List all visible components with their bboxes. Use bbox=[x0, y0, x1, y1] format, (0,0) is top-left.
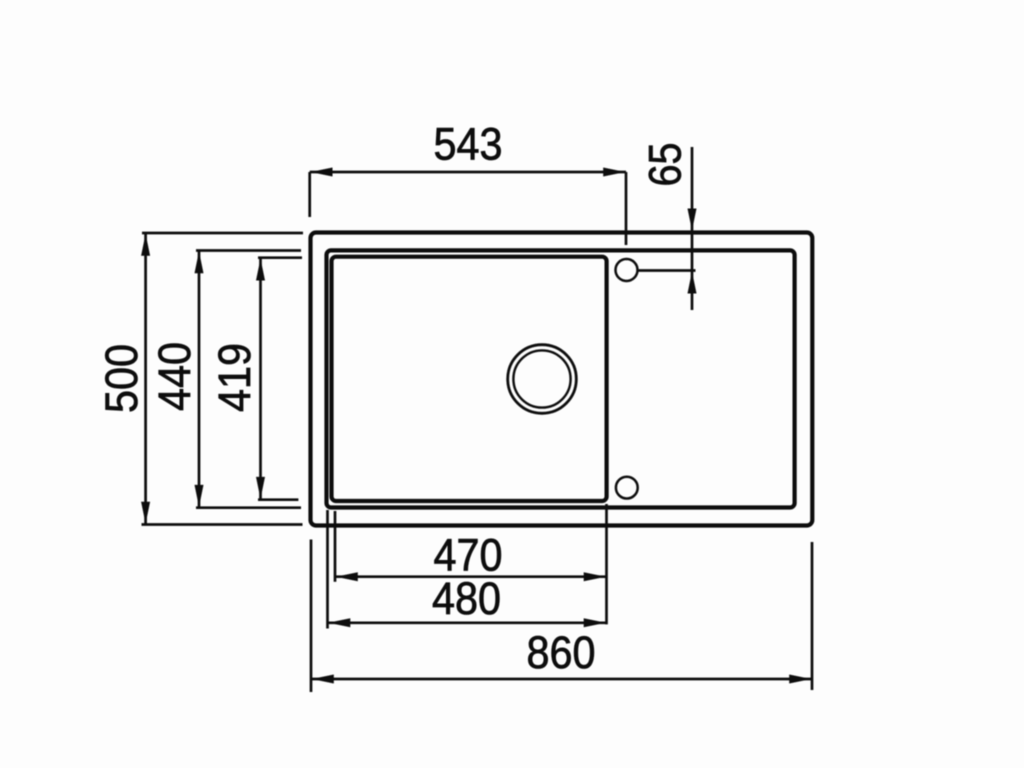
svg-text:543: 543 bbox=[434, 118, 503, 169]
svg-text:65: 65 bbox=[640, 143, 691, 187]
svg-text:860: 860 bbox=[527, 627, 596, 678]
svg-text:419: 419 bbox=[209, 343, 260, 412]
svg-text:440: 440 bbox=[149, 342, 200, 411]
svg-text:480: 480 bbox=[432, 573, 501, 624]
svg-text:500: 500 bbox=[96, 344, 147, 413]
